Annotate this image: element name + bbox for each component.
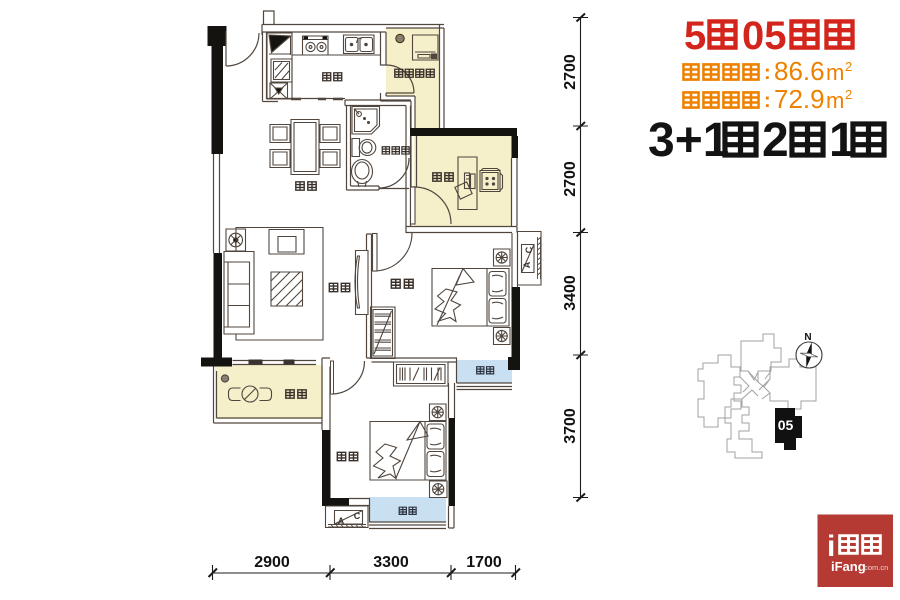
svg-text:05: 05 (778, 417, 794, 433)
svg-text:.com.cn: .com.cn (862, 563, 888, 572)
svg-text:5: 5 (684, 14, 706, 58)
svg-text:72.9: 72.9 (774, 84, 825, 114)
svg-text:C: C (524, 246, 534, 253)
svg-text:1700: 1700 (466, 554, 502, 571)
svg-text:2: 2 (845, 87, 852, 102)
svg-text:3300: 3300 (373, 554, 409, 571)
svg-text:2: 2 (762, 114, 789, 167)
svg-text:N: N (804, 332, 811, 343)
svg-text:3400: 3400 (562, 275, 579, 311)
svg-text:86.6: 86.6 (774, 56, 825, 86)
svg-text:A: A (338, 516, 345, 526)
svg-text:3700: 3700 (562, 408, 579, 444)
svg-text:3+1: 3+1 (648, 114, 729, 167)
svg-text:2700: 2700 (562, 161, 579, 197)
svg-text:2900: 2900 (254, 554, 290, 571)
svg-text:m: m (826, 88, 844, 113)
svg-text:A: A (522, 261, 532, 268)
svg-text::: : (764, 90, 771, 112)
svg-text::: : (764, 62, 771, 84)
svg-text:05: 05 (742, 14, 787, 58)
svg-text:2700: 2700 (562, 54, 579, 90)
svg-text:2: 2 (845, 59, 852, 74)
svg-text:C: C (354, 511, 361, 521)
svg-text:iFang: iFang (831, 559, 866, 574)
svg-text:m: m (826, 60, 844, 85)
